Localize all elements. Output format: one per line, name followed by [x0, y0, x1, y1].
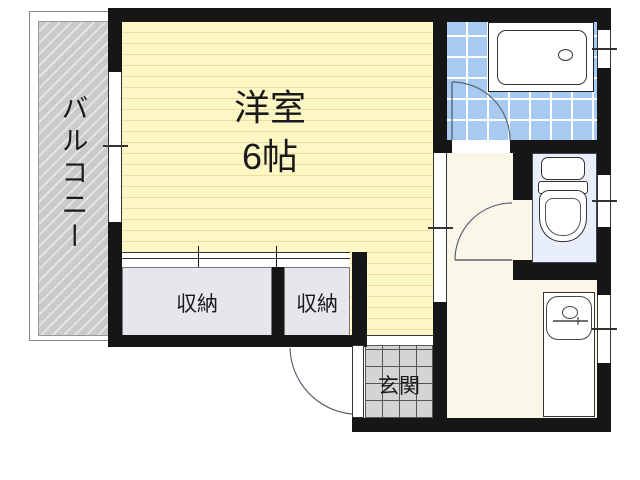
closet-1-label: 収納 [122, 288, 272, 318]
wall-segment [597, 227, 611, 295]
wall-segment [433, 302, 447, 418]
window-tick [428, 227, 453, 229]
balcony-window [108, 72, 122, 222]
entrance-label: 玄関 [365, 370, 433, 400]
wall-segment [433, 140, 452, 153]
wall-segment [108, 222, 122, 347]
wall-segment [352, 418, 611, 432]
toilet-bowl-rim [545, 198, 581, 236]
wall-segment [352, 252, 367, 347]
closet-door-tick [198, 246, 199, 267]
closet-2-label: 収納 [284, 288, 350, 318]
wall-segment [597, 68, 611, 175]
window-tick [592, 48, 617, 50]
wall-segment [108, 335, 365, 347]
wall-segment [513, 153, 532, 200]
window-tick [592, 328, 617, 330]
balcony-label: バルコニー [55, 64, 91, 284]
entrance-door-arc [290, 348, 352, 414]
wall-segment [433, 8, 447, 153]
window-tick [592, 200, 617, 202]
wall-segment [108, 8, 611, 22]
main-room-label: 洋室 6帖 [150, 84, 390, 181]
main-room-size: 6帖 [150, 133, 390, 182]
window-tick [103, 145, 128, 147]
wall-segment [108, 8, 122, 72]
main-room-name: 洋室 [150, 84, 390, 133]
wall-segment [597, 8, 611, 30]
bathtub-drain [558, 49, 573, 61]
closet-door-track-line [122, 258, 350, 259]
faucet-icon [562, 306, 578, 319]
bathtub-inner-rim [497, 30, 587, 85]
front-door-leaf [352, 345, 364, 418]
toilet-tank [541, 157, 585, 180]
wall-segment [510, 140, 611, 153]
floor-plan: バルコニー 洋室 6帖 収納 収納 玄関 [0, 0, 640, 480]
closet-door-tick [276, 246, 277, 267]
wall-segment [272, 267, 284, 337]
